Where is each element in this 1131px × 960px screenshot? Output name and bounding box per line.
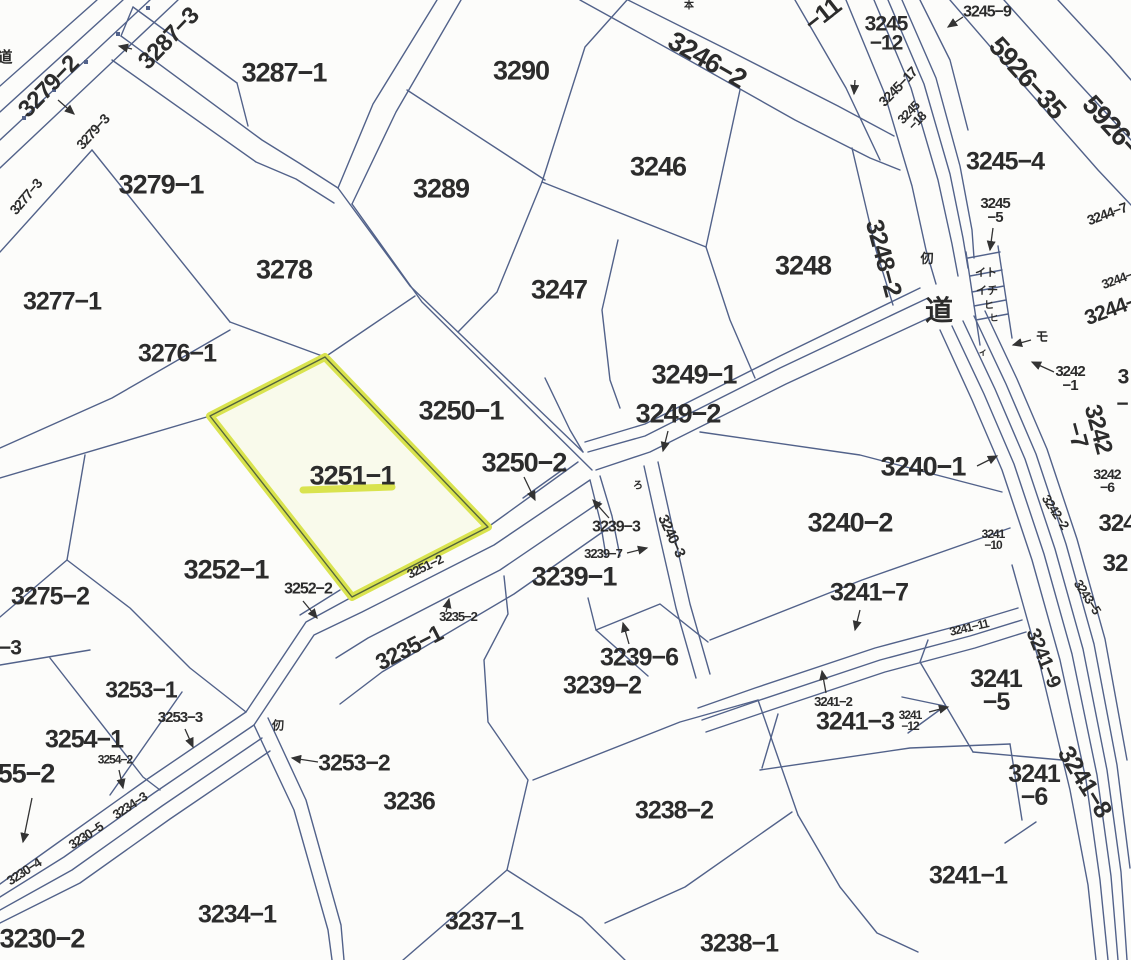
parcel-label-ろ: ろ (633, 481, 643, 490)
parcel-label-3236: 3236 (383, 791, 435, 814)
label-pointer-arrow (593, 500, 609, 518)
boundary-line (602, 240, 620, 408)
parcel-label-3242-1: 3242 −1 (1055, 365, 1084, 393)
parcel-label-本: 本 (684, 1, 694, 10)
parcel-label-3239-6: 3239−6 (600, 647, 678, 670)
parcel-label-3290: 3290 (493, 59, 549, 84)
parcel-label-3240-1: 3240−1 (881, 455, 966, 480)
parcel-label-3245-4: 3245−4 (966, 151, 1044, 174)
boundary-line (230, 322, 325, 357)
boundary-line (973, 752, 1062, 760)
parcel-label-3241-2: 3241−2 (814, 696, 852, 708)
label-pointer-arrow (303, 601, 317, 618)
label-pointer-arrow (623, 623, 629, 644)
parcel-label-仞: 仞 (920, 253, 933, 265)
parcel-label-3237-1: 3237−1 (445, 911, 523, 934)
parcel-label--3: −3 (0, 638, 21, 657)
parcel-label-3249-2: 3249−2 (636, 402, 721, 427)
boundary-line (760, 744, 1010, 770)
boundary-line (484, 576, 528, 870)
parcel-label-3249-1: 3249−1 (652, 363, 737, 388)
label-pointer-arrow (627, 548, 647, 553)
parcel-label-3253-1: 3253−1 (105, 679, 176, 700)
label-pointer-arrow (822, 671, 826, 693)
boundary-line (67, 455, 85, 560)
label-pointer-arrow (1013, 340, 1031, 345)
boundary-line (600, 476, 620, 556)
label-pointer-arrow (855, 610, 860, 630)
parcel-label-3242-6: 3242 −6 (1093, 468, 1120, 494)
survey-dot (116, 32, 120, 36)
boundary-line (706, 90, 755, 378)
parcel-label-イチ: イチ (976, 286, 998, 296)
parcel-label-3239-1: 3239−1 (532, 565, 617, 590)
parcel-label-3246: 3246 (630, 155, 686, 180)
parcel-label-3230-2: 3230−2 (0, 927, 84, 952)
parcel-label-ヒ: ヒ (989, 314, 998, 322)
parcel-label-3279-1: 3279−1 (119, 173, 204, 198)
parcel-label-32: 32 (1103, 553, 1128, 575)
parcel-label--: − (1116, 394, 1127, 413)
parcel-label-3238-2: 3238−2 (635, 800, 713, 823)
parcel-label-3241-7: 3241−7 (830, 582, 908, 605)
boundary-line (0, 416, 210, 478)
parcel-label-3254-2: 3254−2 (98, 754, 132, 765)
boundary-line (338, 0, 437, 188)
parcel-label-55-2: 55−2 (0, 762, 54, 787)
boundary-line (968, 252, 1000, 258)
parcel-label-3254-1: 3254−1 (45, 729, 123, 752)
label-pointer-arrow (854, 80, 855, 94)
parcel-label-3239-3: 3239−3 (592, 521, 640, 536)
parcel-label-3241-12: 3241 −12 (899, 710, 922, 732)
boundary-line (1058, 0, 1131, 80)
label-pointer-arrow (119, 46, 132, 49)
boundary-line (121, 7, 133, 36)
label-pointer-arrow (292, 758, 318, 762)
parcel-label-ヒ: ヒ (984, 301, 994, 310)
parcel-label-3250-1: 3250−1 (419, 399, 504, 424)
parcel-label-仞: 仞 (272, 720, 284, 731)
boundary-line (458, 182, 542, 332)
label-pointer-arrow (1032, 362, 1054, 372)
parcel-label-3238-1: 3238−1 (700, 933, 778, 956)
parcel-label-3234-1: 3234−1 (198, 904, 276, 927)
label-pointer-arrow (990, 228, 993, 250)
parcel-label-324: 324 (1098, 513, 1131, 535)
parcel-label-3245-12: 3245 −12 (865, 15, 908, 54)
parcel-label-3253-3: 3253−3 (158, 711, 202, 725)
parcel-label-3239-7: 3239−7 (584, 548, 622, 560)
label-pointer-arrow (185, 729, 193, 747)
parcel-label-道: 道 (925, 298, 953, 324)
parcel-label-3287-1: 3287−1 (242, 61, 327, 86)
label-pointer-arrow (948, 17, 963, 27)
parcel-label-3241-1: 3241−1 (929, 865, 1007, 888)
parcel-label-3241-6: 3241 −6 (1008, 763, 1060, 809)
parcel-label-3275-2: 3275−2 (11, 586, 89, 609)
boundary-line (588, 298, 928, 452)
survey-dot (84, 60, 88, 64)
parcel-label-3247: 3247 (531, 278, 587, 303)
parcel-label-3241-3: 3241−3 (816, 711, 894, 734)
boundary-line (998, 246, 1012, 338)
parcel-label-3252-2: 3252−2 (284, 583, 332, 598)
boundary-line (762, 714, 778, 768)
parcel-label-3276-1: 3276−1 (138, 343, 216, 366)
boundary-line (920, 640, 973, 752)
boundary-line (758, 700, 798, 815)
label-pointer-arrow (977, 456, 997, 466)
label-pointer-arrow (663, 431, 668, 451)
parcel-label-3245-9: 3245−9 (963, 6, 1011, 21)
parcel-label-3251-1: 3251−1 (310, 464, 395, 489)
boundary-line (605, 812, 792, 923)
parcel-label-3235-2: 3235−2 (439, 611, 477, 623)
boundary-line (596, 316, 933, 470)
boundary-line (658, 462, 710, 674)
parcel-label-3240-2: 3240−2 (808, 511, 893, 536)
cadastral-map: 3287−13279−23279−33277−33287−33279−13277… (0, 0, 1131, 960)
parcel-label-3289: 3289 (413, 177, 469, 202)
boundary-line (237, 83, 248, 126)
parcel-label-3239-2: 3239−2 (563, 675, 641, 698)
boundary-line (545, 378, 583, 452)
parcel-label-3250-2: 3250−2 (482, 451, 567, 476)
boundary-line (542, 0, 627, 182)
parcel-label-3253-2: 3253−2 (318, 752, 389, 773)
parcel-label-3241-5: 3241 −5 (970, 668, 1022, 714)
boundary-line (920, 0, 968, 130)
parcel-label-3241-10: 3241 −10 (982, 529, 1005, 551)
parcel-label-3278: 3278 (256, 258, 312, 283)
parcel-label-3248: 3248 (775, 254, 831, 279)
parcel-label-3245-5: 3245 −5 (980, 197, 1009, 225)
parcel-label-イト: イト (975, 268, 997, 278)
label-pointer-arrow (23, 798, 32, 842)
survey-dot (146, 6, 150, 10)
parcel-label-ィ: ィ (978, 348, 987, 356)
label-pointer-arrow (119, 770, 123, 788)
parcel-label-3252-1: 3252−1 (184, 558, 269, 583)
boundary-line (542, 182, 706, 247)
boundary-line (325, 296, 415, 357)
parcel-label-3277-1: 3277−1 (23, 291, 101, 314)
boundary-line (798, 815, 918, 952)
boundary-line (507, 870, 625, 960)
boundary-line (1005, 822, 1036, 843)
boundary-line (407, 90, 545, 180)
parcel-label-道: 道 (0, 51, 13, 65)
parcel-label-3: 3 (1118, 367, 1129, 386)
parcel-label-モ: モ (1035, 331, 1048, 343)
